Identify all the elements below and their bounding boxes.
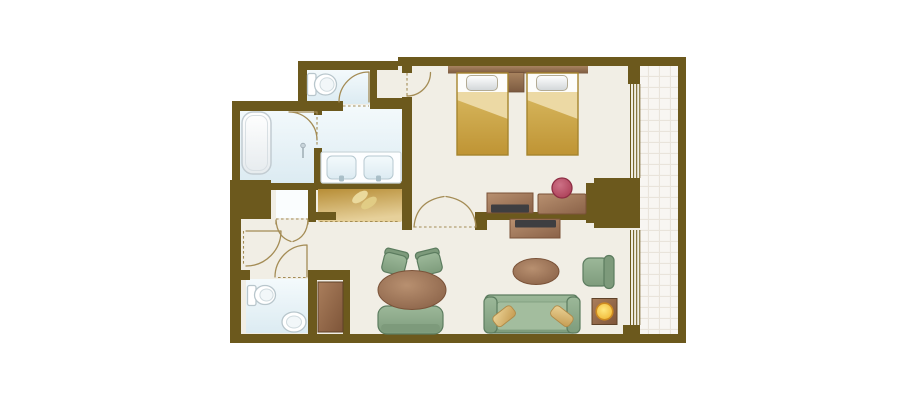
floor-lamp <box>592 299 617 325</box>
coffee-table <box>513 259 559 285</box>
balcony-tile-grid <box>640 66 678 335</box>
twin-bed-2 <box>527 73 578 155</box>
window-pillar <box>594 178 640 228</box>
tv-cabinet-living <box>510 219 560 238</box>
vanity-counter <box>321 152 401 183</box>
pillow <box>537 76 568 91</box>
hand-basin <box>282 312 306 332</box>
toilet-1 <box>308 74 337 96</box>
tv-living <box>515 220 556 228</box>
toilet-2 <box>248 286 276 306</box>
dining-table <box>378 271 446 310</box>
floor-plan <box>0 0 910 400</box>
faucet-2 <box>376 176 381 182</box>
twin-bed-1 <box>457 73 508 155</box>
bathtub <box>242 112 271 174</box>
luggage-cabinet <box>318 282 343 332</box>
nightstand <box>508 73 524 93</box>
floor-plan-canvas <box>0 0 910 400</box>
balcony <box>640 66 678 335</box>
faucet-1 <box>339 176 344 182</box>
dining-bench <box>378 306 443 334</box>
armchair <box>583 256 614 289</box>
tv-bedroom <box>491 205 529 213</box>
sofa <box>484 295 580 333</box>
pillow <box>467 76 498 91</box>
entry-closet-alcove <box>276 190 308 218</box>
tv-cabinet-bedroom <box>487 193 533 213</box>
lamp-light <box>596 303 613 320</box>
dressing-stool <box>552 178 572 198</box>
